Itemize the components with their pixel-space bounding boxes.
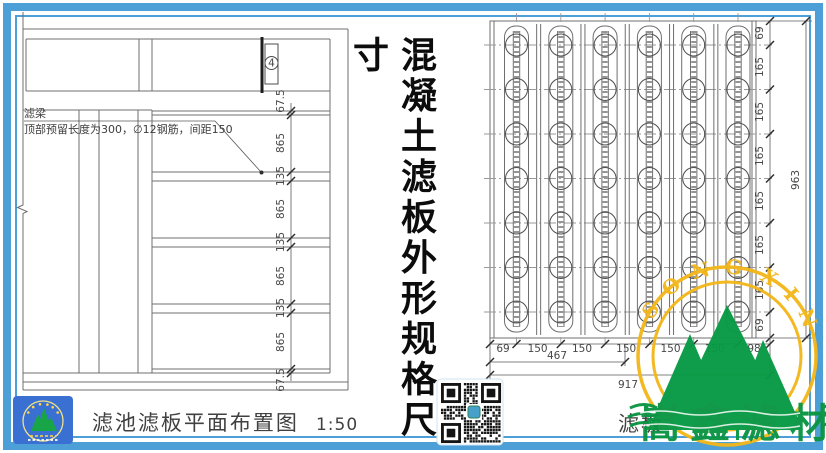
dim-label: 69 [754, 26, 766, 39]
dim-label: 67.5 [275, 368, 287, 391]
plate-columns [505, 13, 751, 345]
company-seal-logo [13, 396, 73, 444]
page-root: 4 滤梁 顶部预留长度为3 [0, 0, 826, 453]
dim-label: 150 [616, 343, 636, 355]
dim-label: 150 [528, 343, 548, 355]
plan-dim-chain: 67.5 865 135 865 135 865 135 865 67.5 [275, 89, 295, 391]
qr-code [437, 379, 503, 445]
beam-note: 顶部预留长度为300，∅12钢筋，间距150 [24, 122, 233, 136]
watermark-arc-right-label: XIN [756, 263, 826, 343]
dim-label: 865 [275, 266, 287, 286]
dim-label: 865 [275, 199, 287, 219]
dim-label: 135 [275, 166, 287, 186]
dim-label: 165 [754, 235, 766, 255]
left-plan-drawing: 4 滤梁 顶部预留长度为3 [18, 12, 359, 435]
dim-label: 135 [275, 232, 287, 252]
dim-sub-total-label: 467 [547, 350, 567, 362]
dim-total-label: 963 [790, 170, 802, 190]
dim-label: 165 [754, 102, 766, 122]
company-watermark: SONG XIN 嵩鑫滤材 [628, 254, 826, 447]
dim-total-label: 917 [618, 379, 638, 391]
left-caption: 滤池滤板平面布置图 1:50 [92, 411, 358, 435]
dim-label: 150 [572, 343, 592, 355]
dim-label: 165 [754, 191, 766, 211]
dim-label: 865 [275, 133, 287, 153]
dim-label: 150 [660, 343, 680, 355]
dim-label: 135 [275, 298, 287, 318]
dim-label: 165 [754, 57, 766, 77]
dim-label: 67.5 [275, 89, 287, 112]
qr-center-logo [468, 406, 480, 418]
dim-label: 69 [754, 318, 766, 331]
dim-label: 165 [754, 146, 766, 166]
beam-label: 滤梁 [24, 106, 46, 120]
left-caption-scale: 1:50 [316, 415, 358, 435]
dim-label: 865 [275, 332, 287, 352]
left-caption-text: 滤池滤板平面布置图 [92, 411, 299, 435]
watermark-arc-text-right: XIN [756, 263, 826, 343]
vertical-page-title: 混凝土滤板外形规格尺寸 [391, 36, 439, 448]
dim-label: 69 [496, 343, 509, 355]
detail-marker-label: 4 [268, 58, 275, 70]
